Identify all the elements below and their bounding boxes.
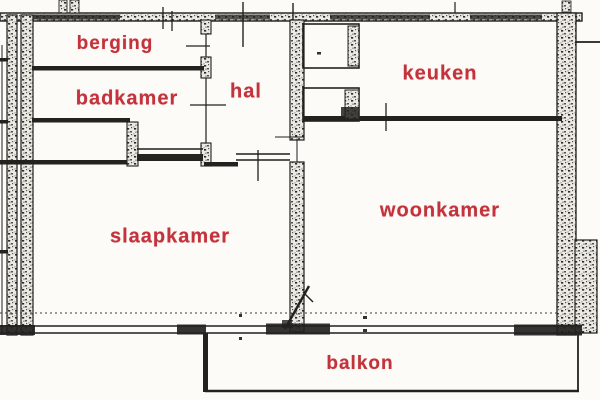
floor-plan: berging badkamer hal keuken slaapkamer w…	[0, 0, 600, 400]
room-label-keuken: keuken	[403, 63, 478, 86]
room-label-badkamer: badkamer	[76, 88, 179, 111]
room-label-hal: hal	[230, 81, 262, 104]
floor-plan-drawing	[0, 0, 600, 400]
room-label-woonkamer: woonkamer	[380, 200, 500, 223]
room-label-slaapkamer: slaapkamer	[110, 226, 230, 249]
room-label-berging: berging	[77, 33, 154, 55]
room-label-balkon: balkon	[326, 353, 393, 375]
